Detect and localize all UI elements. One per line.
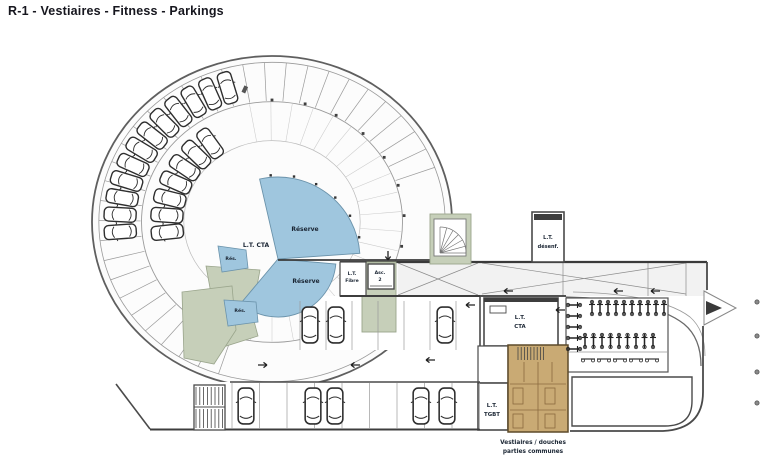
- ring-tick: [397, 184, 400, 187]
- car: [411, 388, 431, 424]
- margin-dot: [755, 300, 759, 304]
- ring-tick: [362, 132, 365, 135]
- hub-arc-tick: [269, 174, 271, 176]
- ring-tick: [335, 114, 338, 117]
- car: [303, 388, 323, 424]
- direction-arrow: [426, 357, 435, 362]
- hub-arc-tick: [293, 175, 295, 177]
- label-lt-cta-center: L.T. CTA: [243, 242, 270, 249]
- label-asc-1: Asc.: [375, 270, 386, 276]
- lt-cta-wall-cap: [484, 298, 558, 302]
- caption-line-2: parties communes: [503, 449, 564, 455]
- ring-tick: [271, 99, 274, 102]
- page-title: R-1 - Vestiaires - Fitness - Parkings: [8, 4, 224, 18]
- label-reserve-upper: Réserve: [291, 226, 318, 233]
- car: [437, 388, 457, 424]
- caption: Vestiaires / douches parties communes: [500, 440, 566, 455]
- car: [300, 307, 320, 343]
- hub-arc-tick: [315, 183, 317, 185]
- lt-desenf-wall-cap: [534, 214, 562, 220]
- margin-dots: [755, 300, 759, 405]
- car: [236, 388, 256, 424]
- car: [435, 307, 455, 343]
- label-reserve-lower: Réserve: [292, 278, 319, 285]
- label-lt-fibre-1: L.T.: [348, 271, 357, 277]
- car: [104, 205, 137, 225]
- label-res-2: Rés.: [234, 307, 245, 314]
- margin-dot: [755, 334, 759, 338]
- label-desenf-1: L.T.: [543, 235, 553, 241]
- margin-dot: [755, 401, 759, 405]
- sw-diagonal-wall: [116, 384, 150, 429]
- ring-tick: [304, 102, 307, 105]
- caption-line-1: Vestiaires / douches: [500, 440, 566, 446]
- label-asc-2: 2: [378, 277, 381, 283]
- page: R-1 - Vestiaires - Fitness - Parkings: [0, 0, 775, 465]
- label-cta-right-1: L.T.: [515, 315, 525, 321]
- tech-room-upper: [478, 346, 508, 383]
- floor-plan: Réserve Réserve L.T. CTA Rés. Rés. L.T. …: [0, 0, 775, 465]
- label-cta-right-2: CTA: [514, 324, 526, 330]
- label-desenf-2: désenf.: [538, 243, 559, 250]
- margin-dot: [755, 370, 759, 374]
- hub-arc-tick: [349, 215, 351, 217]
- label-res-1: Rés.: [225, 255, 236, 262]
- elevator-2: [368, 264, 394, 289]
- label-lt-fibre-2: Fibre: [345, 278, 358, 284]
- hub-arc-tick: [358, 236, 360, 238]
- label-tgbt-2: TGBT: [484, 412, 500, 418]
- hub-arc-tick: [334, 196, 336, 198]
- car: [325, 388, 345, 424]
- fitness-room: [572, 377, 692, 426]
- label-tgbt-1: L.T.: [487, 403, 497, 409]
- ring-tick: [400, 245, 403, 248]
- lt-cta-right-room: [484, 298, 558, 346]
- ring-tick: [403, 214, 406, 217]
- ring-tick: [383, 156, 386, 159]
- car: [326, 307, 346, 343]
